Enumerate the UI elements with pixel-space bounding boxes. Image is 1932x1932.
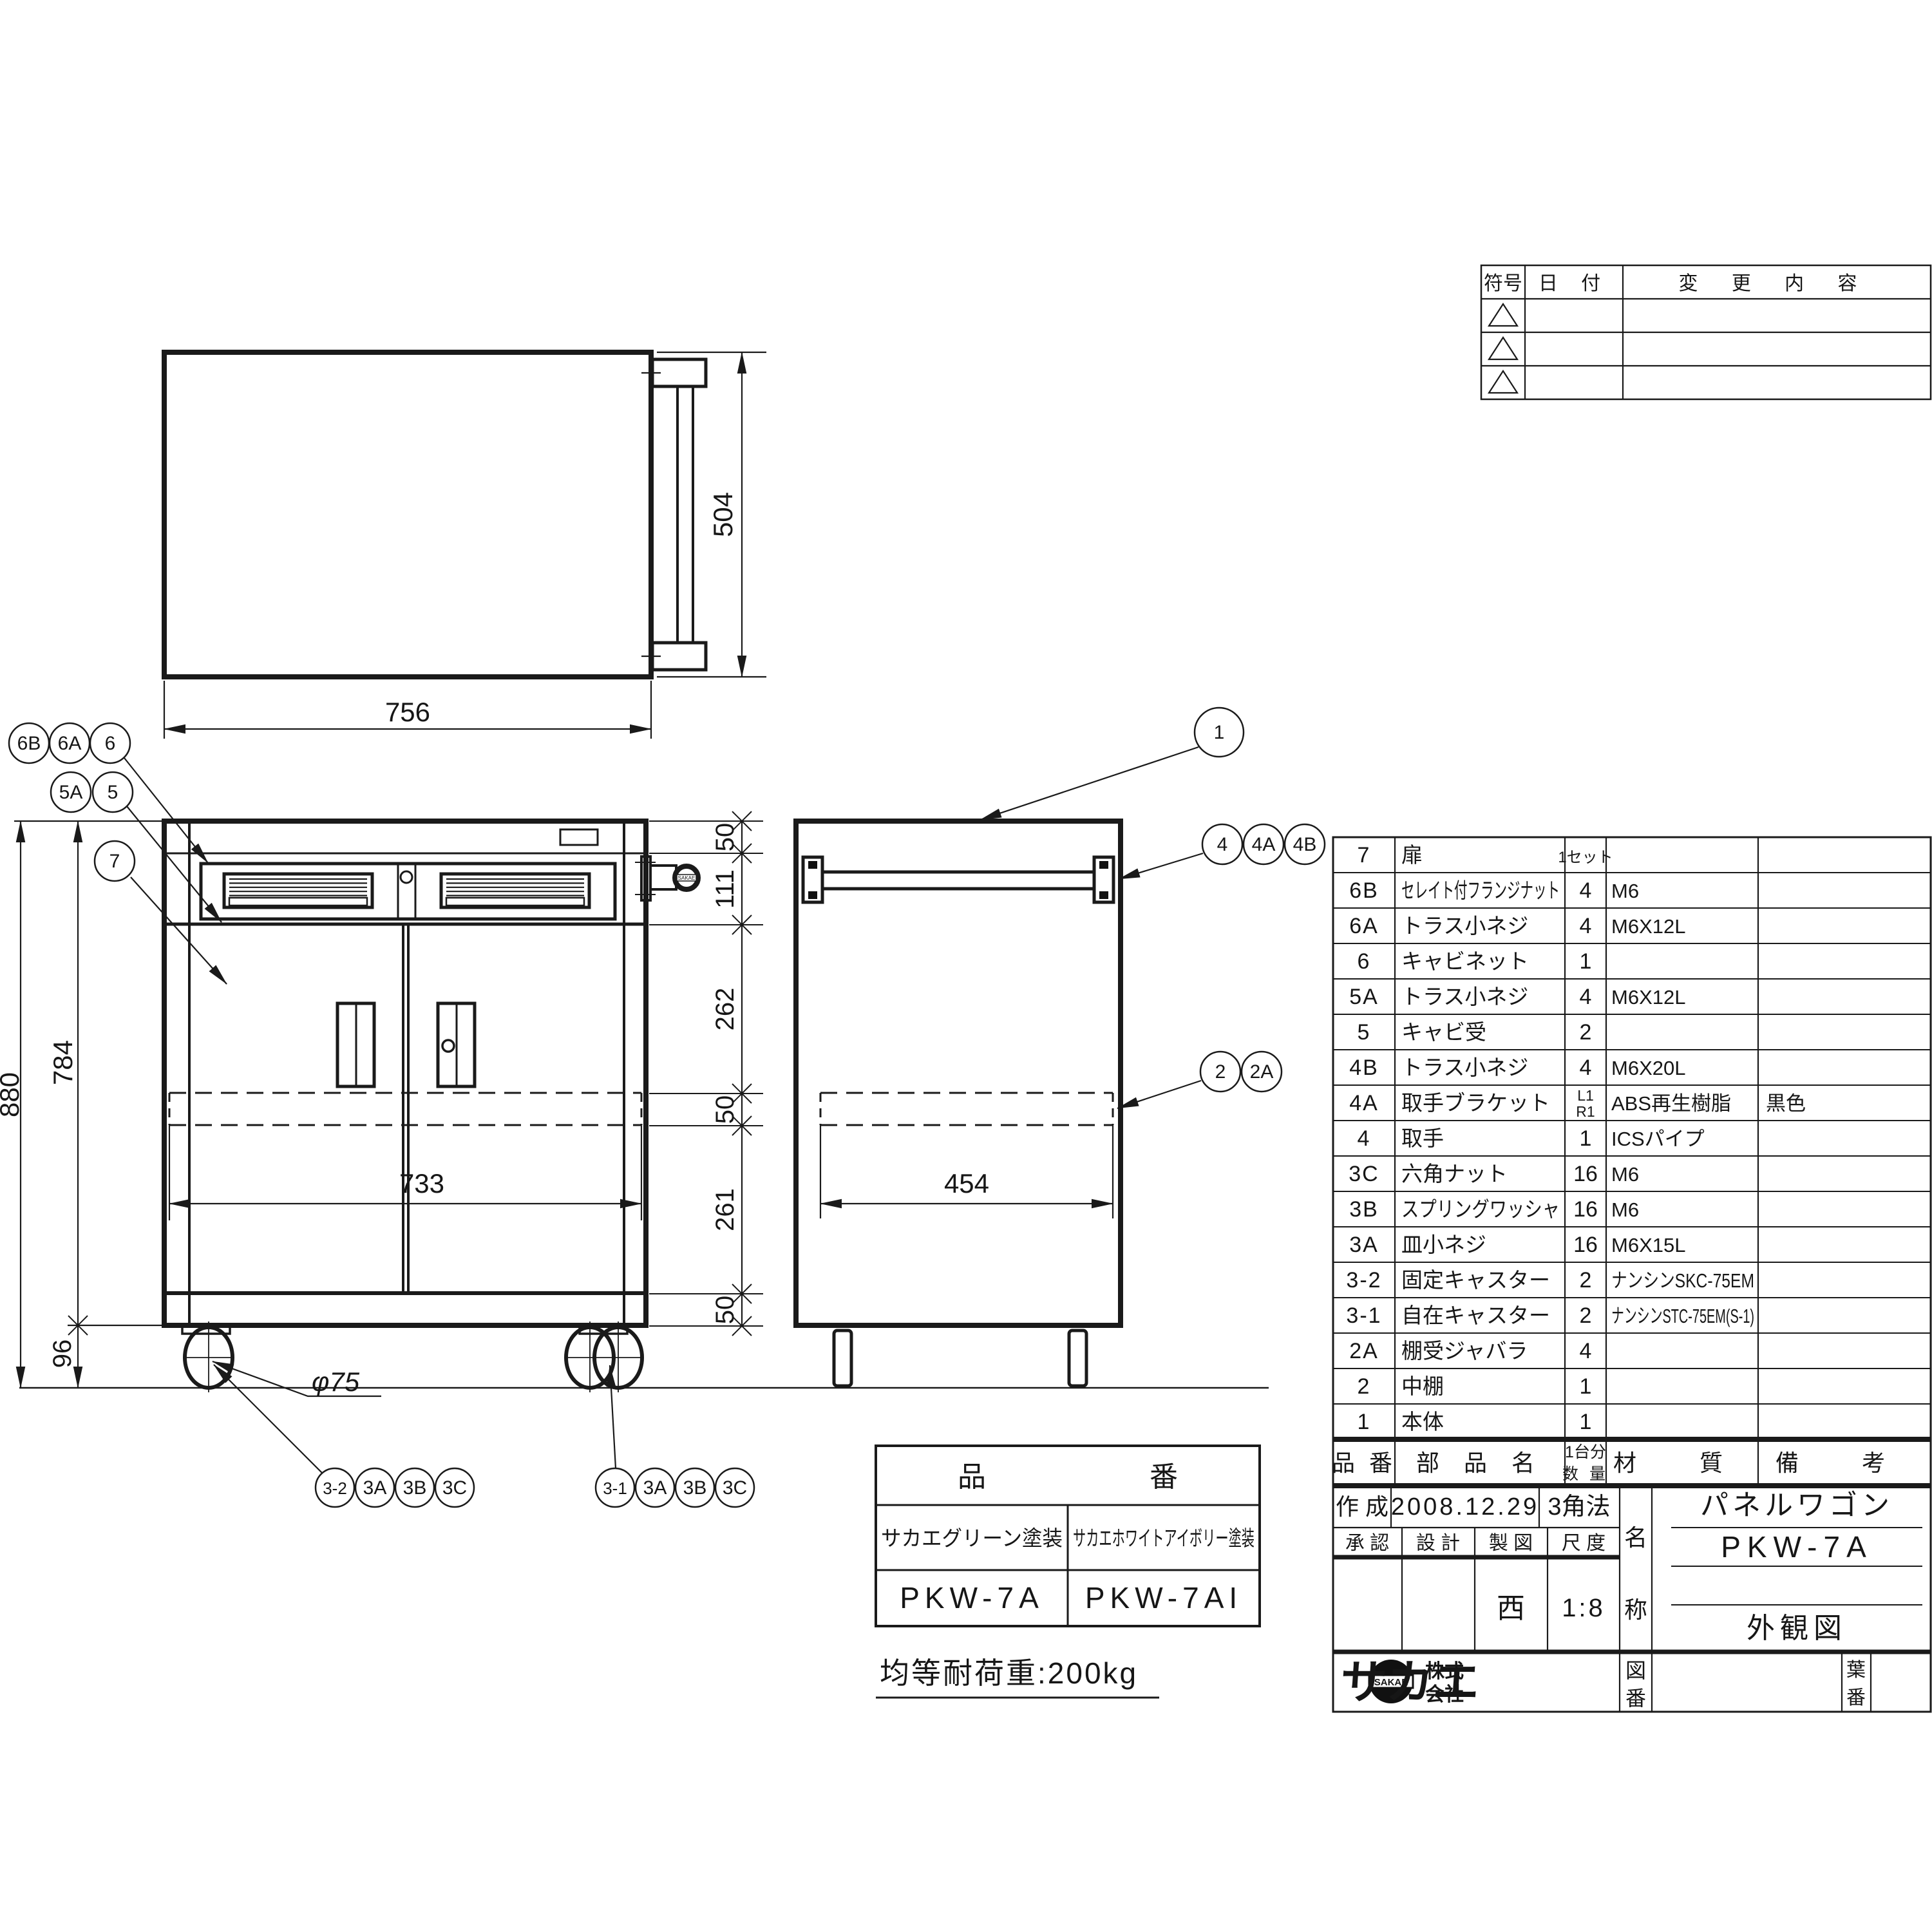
balloon-label-3-2: 3-2 (323, 1479, 347, 1498)
revision-col-change: 変 更 内 容 (1678, 273, 1871, 294)
dwg-no-label-bottom: 番 (1625, 1687, 1646, 1710)
parts-qty: 4 (1580, 878, 1592, 903)
title-block: 作 成 2008.12.29 3角法 承 認 設 計 製 図 尺 度 西 1:8… (1333, 1486, 1931, 1712)
parts-name: 取手 (1401, 1126, 1444, 1150)
parts-no: 4A (1349, 1091, 1379, 1115)
dwg-no-label-top: 図 (1625, 1659, 1646, 1682)
leader-fixed-caster (214, 1365, 322, 1473)
parts-qty: 1 (1580, 1126, 1592, 1151)
title-design-label: 設 計 (1416, 1533, 1460, 1554)
product-model-right: PKW-7AI (1085, 1581, 1242, 1615)
door-lock (442, 1040, 454, 1052)
balloon-label-5A: 5A (59, 782, 83, 803)
parts-qty: 2 (1580, 1268, 1592, 1293)
handle-endcap-text: SAKAE (678, 875, 696, 881)
title-model: PKW-7A (1721, 1530, 1873, 1564)
parts-no: 6A (1349, 914, 1379, 938)
dim-body-height: 784 (48, 1040, 78, 1085)
parts-material: M6X20L (1611, 1057, 1685, 1079)
parts-name: 固定キャスター (1401, 1268, 1550, 1292)
dim-chain-2: 262 (711, 988, 739, 1031)
title-product-name: パネルワゴン (1700, 1490, 1893, 1521)
louver-panels-shape (229, 898, 367, 905)
balloon-label-6B: 6B (17, 733, 41, 754)
product-table: 品 番 サカエグリーン塗装 サカエホワイトアイボリー塗装 PKW-7A PKW-… (876, 1446, 1260, 1626)
parts-name: 皿小ネジ (1401, 1233, 1486, 1256)
parts-qty: 1 (1580, 1410, 1592, 1434)
parts-qty: 4 (1580, 985, 1592, 1009)
parts-name: 自在キャスター (1401, 1303, 1550, 1327)
parts-name: 取手ブラケット (1401, 1091, 1550, 1115)
title-name-label-bottom: 称 (1624, 1596, 1647, 1623)
balloon-label-4: 4 (1217, 834, 1228, 855)
balloon-label-6: 6 (105, 733, 116, 754)
parts-no: 5 (1358, 1020, 1371, 1045)
parts-material: M6 (1611, 1198, 1639, 1221)
top-view: 756 504 (164, 352, 766, 739)
title-scale: 1:8 (1562, 1594, 1605, 1622)
dim-caster-dia: φ75 (312, 1367, 360, 1397)
leader-swivel-caster (610, 1365, 616, 1468)
company-name: サカエ (1338, 1657, 1481, 1709)
parts-name: 扉 (1401, 843, 1423, 867)
parts-name: キャビ受 (1401, 1020, 1486, 1044)
leader-shelf (1117, 1081, 1201, 1108)
title-drafter: 西 (1497, 1593, 1525, 1624)
leader-door (131, 877, 227, 984)
parts-no: 6B (1349, 878, 1379, 903)
page: { "document": { "type": "engineering-dra… (0, 0, 1932, 1932)
top-view-panel-outline (164, 352, 651, 677)
parts-qty: L1 (1577, 1087, 1594, 1104)
balloon-label-7: 7 (109, 851, 120, 872)
title-scale-label: 尺 度 (1562, 1533, 1605, 1554)
revision-symbol-triangle (1489, 304, 1517, 326)
parts-no: 1 (1358, 1410, 1371, 1434)
revision-col-symbol: 符号 (1484, 273, 1522, 294)
dim-caster-height: 96 (48, 1340, 77, 1368)
parts-name: セレイト付フランジナット (1401, 878, 1560, 902)
balloon-label-1: 1 (1214, 722, 1225, 743)
front-view: SAKAE (164, 821, 698, 1392)
bracket-screw (808, 861, 817, 869)
parts-material: M6X12L (1611, 986, 1685, 1009)
dim-overall-height: 880 (0, 1072, 24, 1117)
sheet-no-label-top: 葉 (1846, 1660, 1866, 1681)
balloon-label-4B: 4B (1293, 834, 1317, 855)
balloon-label-5: 5 (108, 782, 118, 803)
side-handle-bar (822, 872, 1094, 889)
title-sheet-title: 外観図 (1747, 1613, 1847, 1644)
parts-no: 2 (1358, 1374, 1371, 1399)
parts-qty: 4 (1580, 914, 1592, 938)
sheet-no-label-bottom: 番 (1846, 1687, 1866, 1709)
parts-qty: 1セット (1558, 849, 1613, 866)
product-header-left: 品 (958, 1461, 986, 1493)
balloon-label-3C: 3C (723, 1477, 747, 1499)
parts-name: 中棚 (1401, 1374, 1444, 1398)
parts-qty: 16 (1573, 1162, 1598, 1186)
parts-name: 棚受ジャバラ (1401, 1339, 1528, 1363)
balloon-label-6A: 6A (58, 733, 82, 754)
side-view: 454 (796, 821, 1121, 1386)
balloon-label-3A: 3A (363, 1477, 387, 1499)
parts-qty: 2 (1580, 1303, 1592, 1328)
product-model-left: PKW-7A (900, 1581, 1044, 1615)
parts-header-no: 品 番 (1332, 1450, 1396, 1476)
parts-qty: 2 (1580, 1020, 1592, 1045)
parts-remarks: 黒色 (1766, 1092, 1806, 1115)
parts-header-remarks: 備 考 (1776, 1450, 1913, 1476)
dim-shelf-depth: 454 (944, 1168, 989, 1198)
product-header-right: 番 (1150, 1461, 1178, 1493)
parts-name: スプリングワッシャ (1401, 1197, 1560, 1221)
balloon-label-2A: 2A (1250, 1061, 1274, 1083)
parts-rows: 7扉1セット6Bセレイト付フランジナット4M66Aトラス小ネジ4M6X12L6キ… (1333, 843, 1931, 1434)
parts-no: 3-2 (1346, 1268, 1381, 1293)
parts-qty: 16 (1573, 1197, 1598, 1222)
front-body-outline (164, 821, 646, 1325)
parts-qty: 4 (1580, 1056, 1592, 1080)
title-approval-label: 承 認 (1345, 1533, 1389, 1554)
parts-qty: 1 (1580, 949, 1592, 974)
title-drafting-label: 製 図 (1489, 1533, 1533, 1554)
parts-material: ナンシンSTC-75EM(S-1) (1611, 1305, 1754, 1327)
parts-name: トラス小ネジ (1401, 985, 1528, 1009)
parts-no: 6 (1358, 949, 1371, 974)
parts-qty: 4 (1580, 1339, 1592, 1363)
nameplate (560, 829, 598, 845)
balloon-label-3-1: 3-1 (603, 1479, 627, 1498)
parts-name: トラス小ネジ (1401, 914, 1528, 938)
louver-panels-shape (446, 898, 584, 905)
parts-table: 7扉1セット6Bセレイト付フランジナット4M66Aトラス小ネジ4M6X12L6キ… (1332, 837, 1931, 1486)
parts-header-name: 部 品 名 (1416, 1450, 1544, 1476)
parts-material: ナンシンSKC-75EM (1611, 1269, 1754, 1292)
parts-qty: 16 (1573, 1233, 1598, 1257)
load-note-group: 均等耐荷重:200kg (876, 1656, 1159, 1698)
parts-header-material: 材 質 (1613, 1450, 1751, 1476)
parts-no: 3B (1349, 1197, 1379, 1222)
parts-header-qty1: 1台分 (1565, 1443, 1606, 1461)
parts-name: キャビネット (1401, 949, 1529, 973)
balloon-label-3C: 3C (442, 1477, 467, 1499)
parts-name: 本体 (1401, 1410, 1444, 1434)
lock-cylinder (401, 871, 412, 883)
bracket-screw (1099, 891, 1108, 899)
callout-leaders (124, 747, 1203, 1473)
title-created-label: 作 成 (1336, 1493, 1388, 1520)
parts-no: 3A (1349, 1233, 1379, 1257)
parts-no: 3-1 (1346, 1303, 1381, 1328)
dim-chain-4: 261 (711, 1188, 739, 1231)
balloon-label-2: 2 (1215, 1061, 1226, 1083)
parts-material: ABS再生樹脂 (1611, 1092, 1731, 1115)
title-projection: 3角法 (1548, 1493, 1610, 1520)
dim-top-width: 756 (385, 697, 430, 727)
title-created-date: 2008.12.29 (1391, 1493, 1539, 1520)
louver-panels (224, 874, 589, 907)
parts-name: トラス小ネジ (1401, 1056, 1528, 1079)
leader-handle (1119, 853, 1203, 879)
revision-triangles (1489, 304, 1517, 393)
drawing-sheet: { "document": { "type": "engineering-dra… (0, 0, 1932, 1932)
parts-material: M6 (1611, 880, 1639, 902)
handle-bar-top-view (677, 386, 693, 643)
balloon-label-3A: 3A (643, 1477, 667, 1499)
parts-no: 7 (1358, 843, 1371, 867)
parts-no: 4B (1349, 1056, 1379, 1080)
revision-symbol-triangle (1489, 371, 1517, 393)
parts-header-qty2: 数 量 (1562, 1465, 1609, 1483)
side-leg-left (834, 1331, 851, 1386)
parts-no: 2A (1349, 1339, 1379, 1363)
parts-name: 六角ナット (1401, 1162, 1508, 1186)
handle-bar-profile (650, 866, 676, 889)
revision-col-date: 日 付 (1539, 273, 1609, 294)
dim-door-width: 733 (399, 1168, 444, 1198)
parts-material: ICSパイプ (1611, 1128, 1705, 1150)
product-finish-left: サカエグリーン塗装 (881, 1526, 1063, 1550)
load-note: 均等耐荷重:200kg (880, 1656, 1138, 1690)
balloon-label-4A: 4A (1252, 834, 1276, 855)
revision-symbol-triangle (1489, 337, 1517, 359)
leader-body (980, 747, 1198, 820)
product-finish-right: サカエホワイトアイボリー塗装 (1073, 1526, 1255, 1550)
parts-material: M6X15L (1611, 1234, 1685, 1256)
parts-qty: R1 (1576, 1103, 1595, 1120)
dim-top-depth: 504 (708, 492, 738, 537)
side-body-outline (796, 821, 1121, 1325)
parts-no: 3C (1349, 1162, 1379, 1186)
dim-chain-1: 111 (711, 869, 739, 909)
bracket-screw (808, 891, 817, 899)
parts-material: M6 (1611, 1163, 1639, 1186)
bracket-screw (1099, 861, 1108, 869)
parts-no: 4 (1358, 1126, 1371, 1151)
revision-table: 符号 日 付 変 更 内 容 (1481, 265, 1931, 399)
parts-no: 5A (1349, 985, 1379, 1009)
parts-material: M6X12L (1611, 915, 1685, 938)
balloon-label-3B: 3B (683, 1477, 707, 1499)
parts-qty: 1 (1580, 1374, 1592, 1399)
side-leg-right (1069, 1331, 1086, 1386)
cad-drawing-svg: 756 504 (0, 0, 1932, 1932)
title-name-label-top: 名 (1624, 1524, 1647, 1551)
balloon-label-3B: 3B (403, 1477, 427, 1499)
